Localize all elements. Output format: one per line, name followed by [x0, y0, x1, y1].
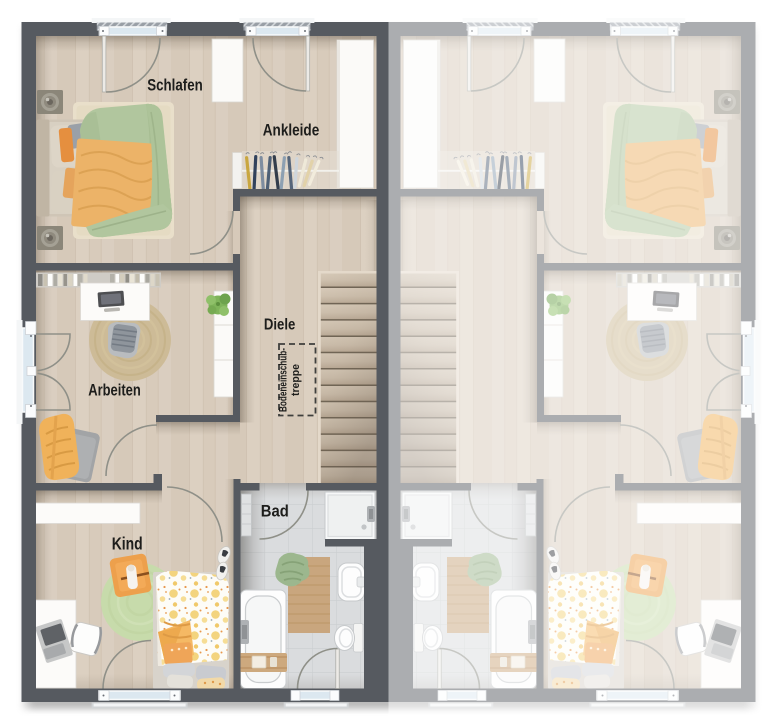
svg-text:Bad: Bad	[261, 502, 289, 521]
svg-text:Arbeiten: Arbeiten	[88, 381, 141, 400]
svg-text:Ankleide: Ankleide	[263, 121, 320, 140]
svg-text:treppe: treppe	[290, 364, 302, 396]
svg-text:Kind: Kind	[112, 534, 143, 554]
svg-text:Diele: Diele	[264, 317, 296, 334]
svg-text:Bodeneinschub-: Bodeneinschub-	[278, 348, 290, 412]
svg-text:Schlafen: Schlafen	[147, 76, 203, 95]
